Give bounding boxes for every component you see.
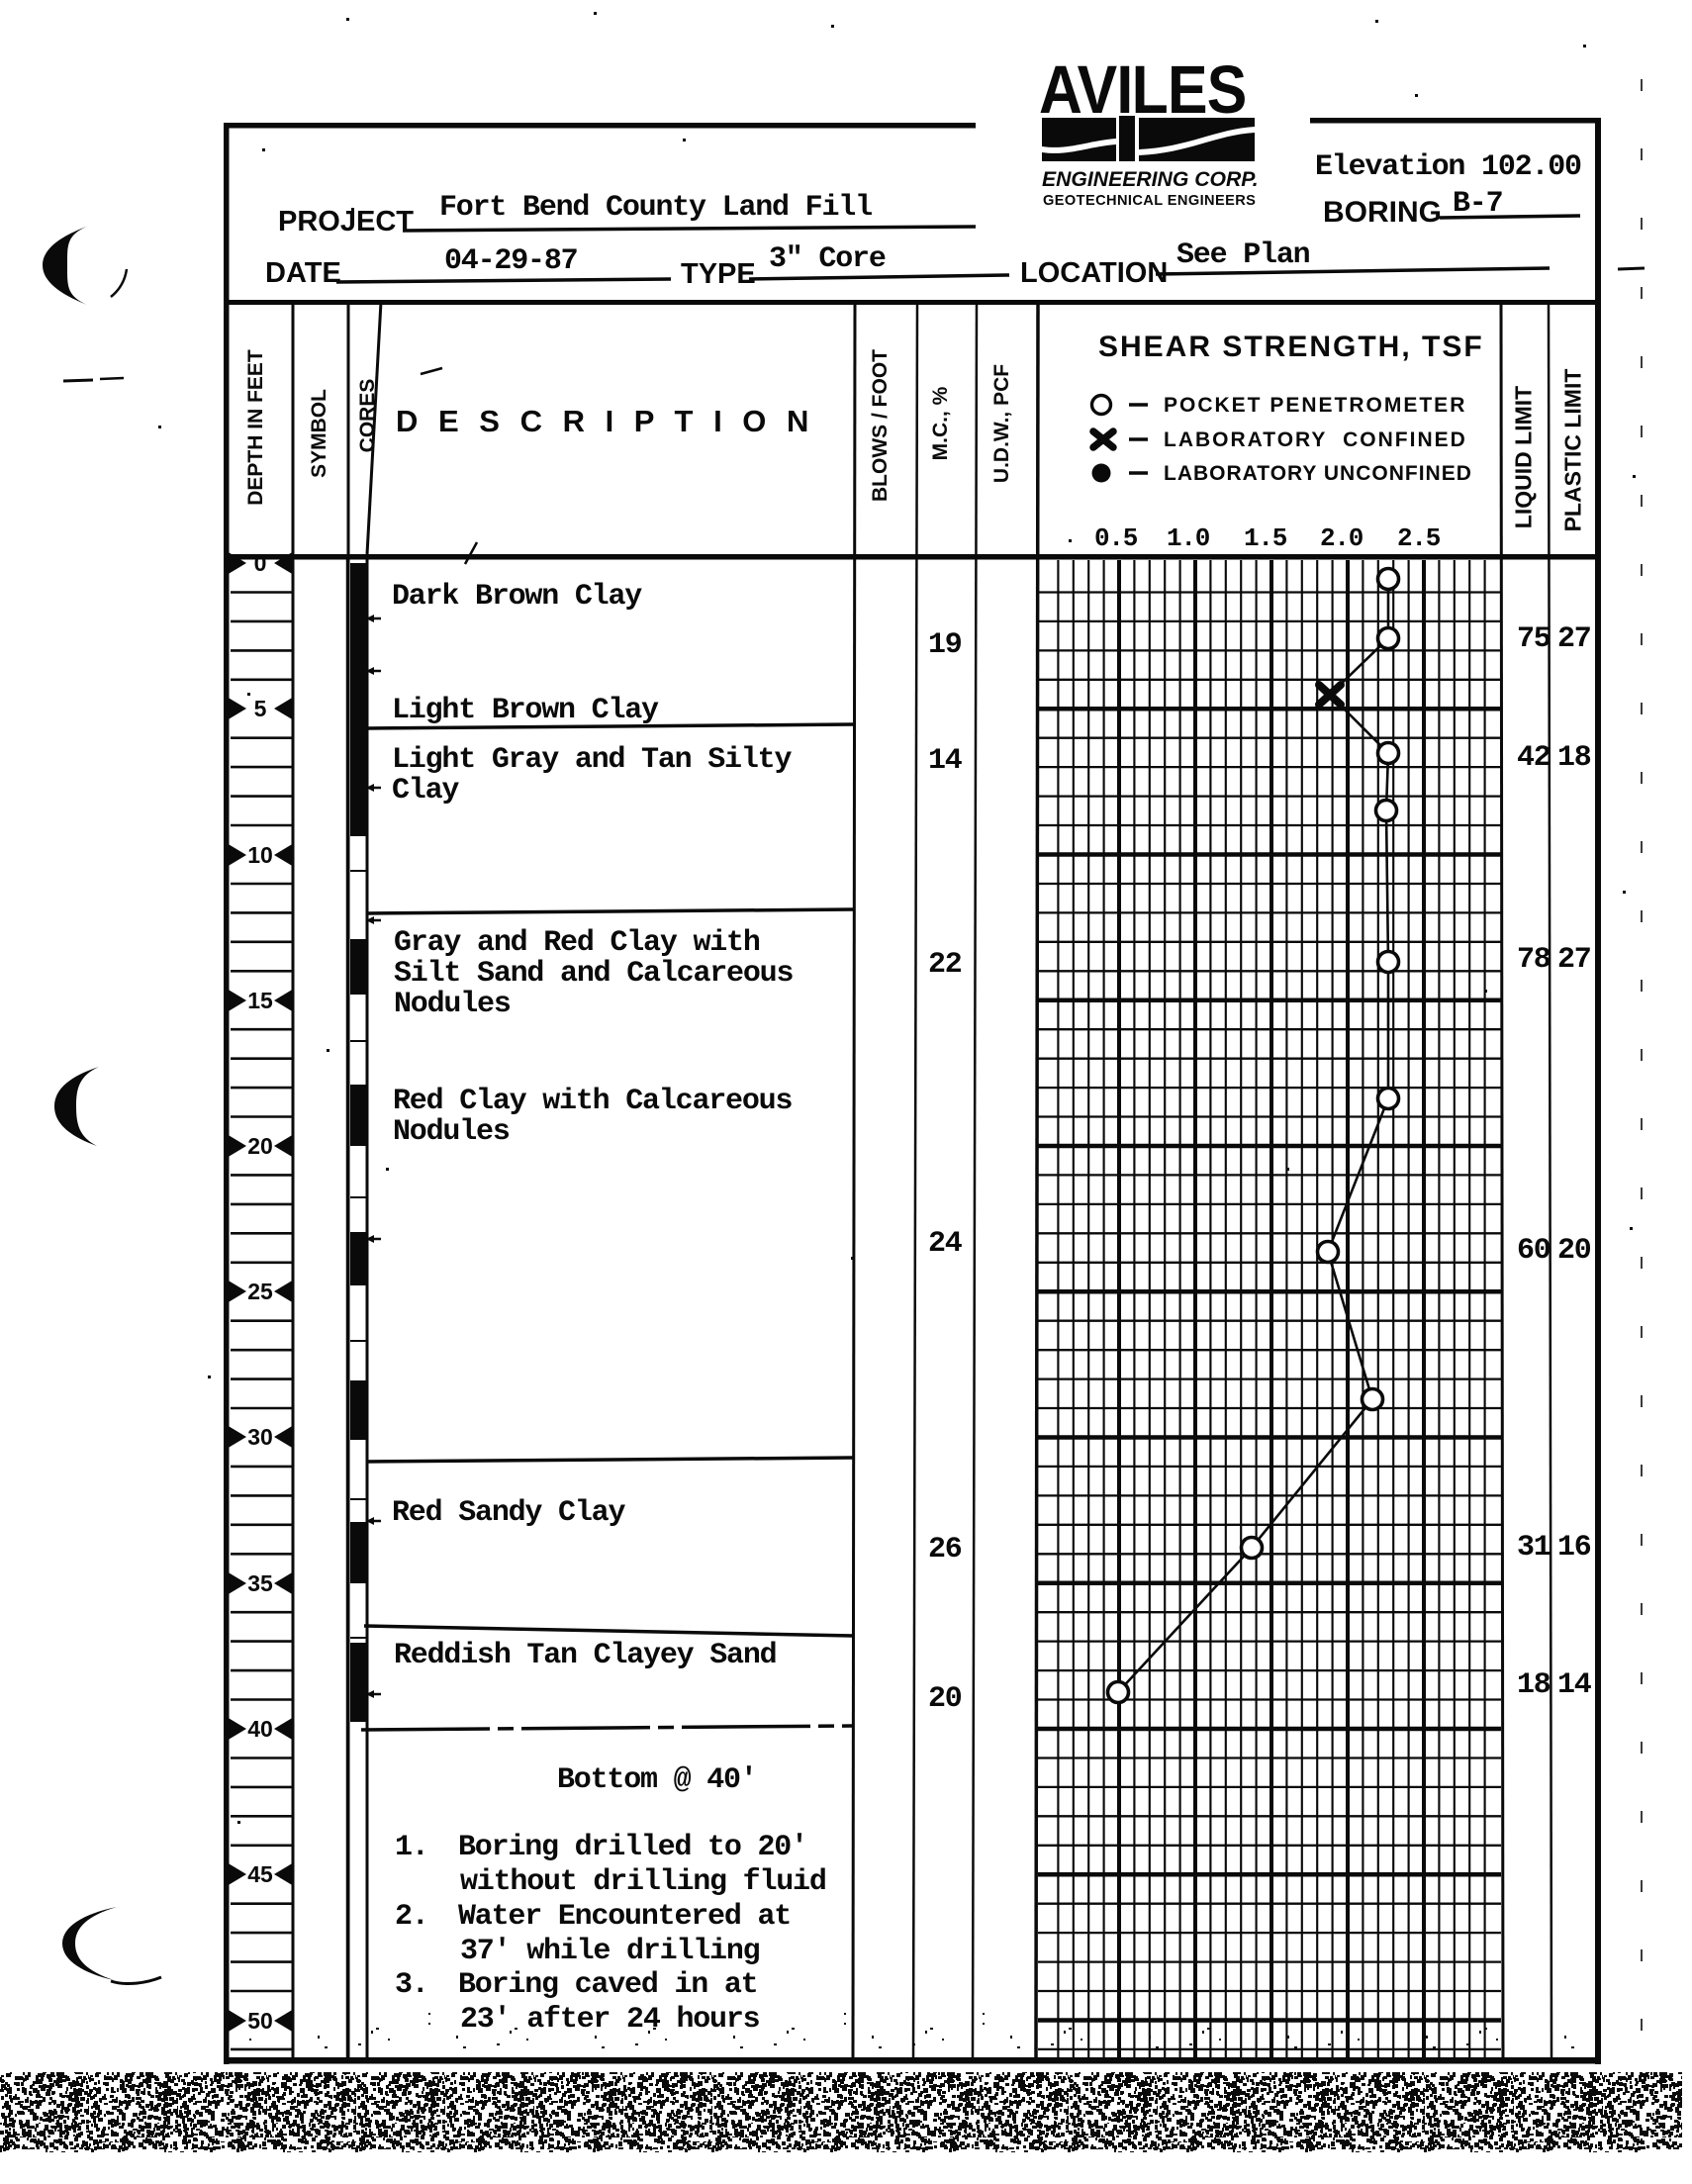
svg-text:5: 5 (254, 696, 267, 721)
svg-text:50: 50 (247, 2008, 273, 2034)
svg-text:35: 35 (247, 1570, 273, 1596)
svg-text:45: 45 (247, 1861, 273, 1887)
svg-text:40: 40 (247, 1716, 273, 1742)
svg-text:25: 25 (247, 1279, 273, 1304)
svg-text:10: 10 (247, 842, 273, 868)
svg-text:20: 20 (247, 1133, 273, 1159)
svg-text:30: 30 (247, 1424, 273, 1450)
svg-text:15: 15 (247, 988, 273, 1013)
svg-text:0: 0 (254, 550, 267, 576)
